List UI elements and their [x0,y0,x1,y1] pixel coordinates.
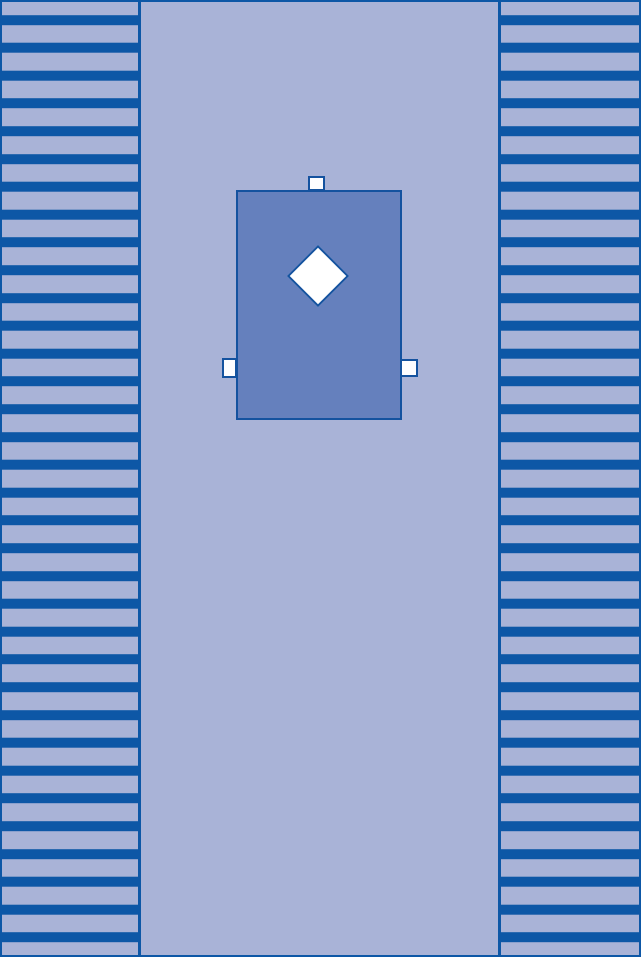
tab-top-icon [308,176,325,191]
pleated-strip-right-icon [498,0,641,957]
tab-right-icon [400,359,418,377]
tab-left-icon [222,358,237,378]
pleated-strip-left-icon [0,0,141,957]
drape-illustration [0,0,641,957]
